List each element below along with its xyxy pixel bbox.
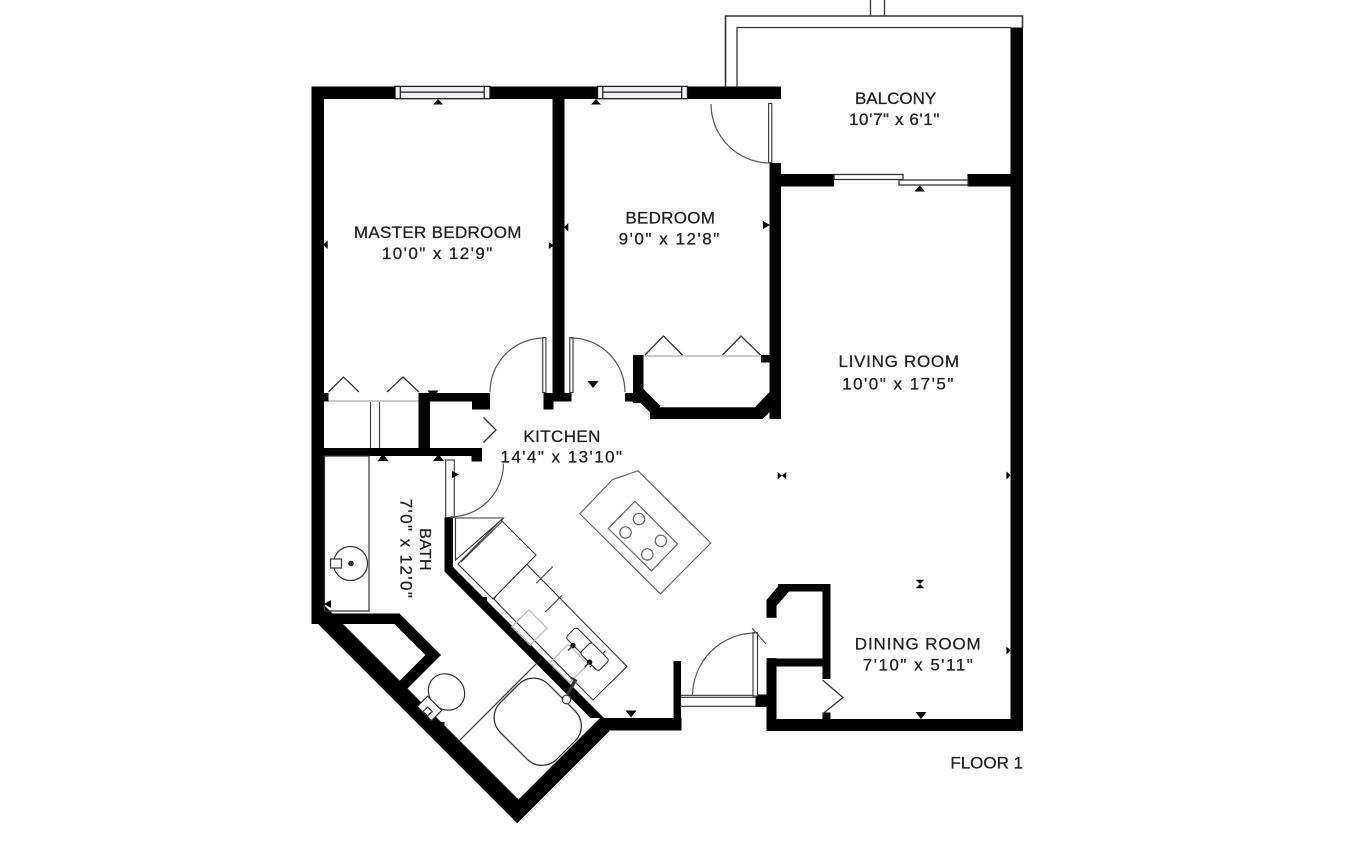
svg-text:7'10" x 5'11": 7'10" x 5'11" bbox=[863, 656, 974, 675]
svg-text:LIVING ROOM: LIVING ROOM bbox=[838, 352, 959, 371]
svg-text:14'4" x 13'10": 14'4" x 13'10" bbox=[500, 448, 623, 467]
svg-text:10'0" x 12'9": 10'0" x 12'9" bbox=[382, 244, 494, 263]
svg-text:DINING ROOM: DINING ROOM bbox=[855, 634, 982, 653]
svg-text:9'0" x 12'8": 9'0" x 12'8" bbox=[619, 230, 721, 249]
svg-text:MASTER BEDROOM: MASTER BEDROOM bbox=[354, 223, 522, 242]
svg-text:BEDROOM: BEDROOM bbox=[625, 209, 715, 228]
svg-text:10'7" x 6'1": 10'7" x 6'1" bbox=[849, 110, 940, 129]
svg-text:KITCHEN: KITCHEN bbox=[523, 427, 600, 446]
svg-text:FLOOR 1: FLOOR 1 bbox=[950, 754, 1023, 773]
svg-text:BALCONY: BALCONY bbox=[855, 89, 936, 108]
svg-text:7'0" x 12'0": 7'0" x 12'0" bbox=[397, 499, 416, 600]
svg-text:10'0" x 17'5": 10'0" x 17'5" bbox=[842, 375, 955, 394]
svg-text:BATH: BATH bbox=[416, 528, 433, 571]
